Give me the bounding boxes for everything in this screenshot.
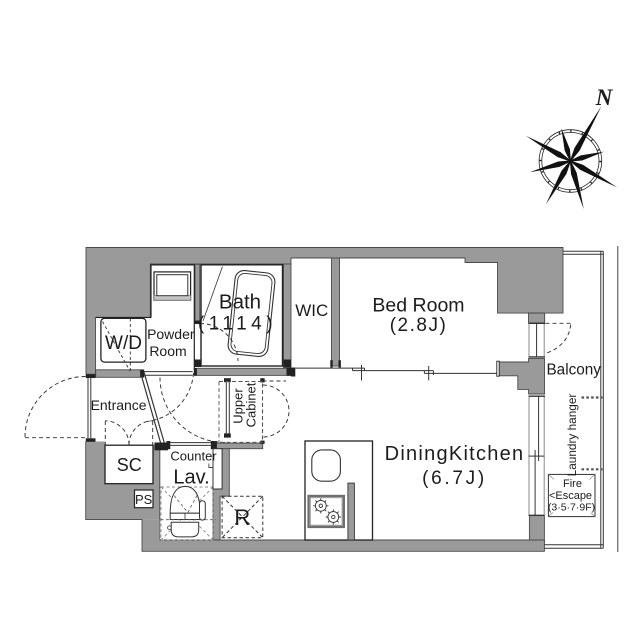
svg-text:(1114): (1114) xyxy=(198,313,277,334)
svg-text:Entrance: Entrance xyxy=(91,397,147,413)
svg-text:Bed Room: Bed Room xyxy=(372,295,464,317)
svg-text:(3·5·7·9F): (3·5·7·9F) xyxy=(548,502,595,514)
svg-text:N: N xyxy=(595,85,614,110)
svg-text:Lav.: Lav. xyxy=(173,467,209,489)
svg-text:Fire: Fire xyxy=(563,478,582,490)
svg-text:<Escape: <Escape xyxy=(549,490,592,502)
svg-text:(2.8J): (2.8J) xyxy=(390,315,448,336)
svg-text:Powder: Powder xyxy=(147,326,195,342)
svg-text:DiningKitchen: DiningKitchen xyxy=(385,443,525,465)
svg-text:Cabinet: Cabinet xyxy=(244,382,259,427)
svg-text:SC: SC xyxy=(117,455,142,475)
svg-text:Counter: Counter xyxy=(170,449,217,464)
svg-text:Laundry hanger: Laundry hanger xyxy=(565,394,579,477)
svg-text:WIC: WIC xyxy=(295,301,328,320)
svg-text:(6.7J): (6.7J) xyxy=(422,468,487,489)
svg-text:W/D: W/D xyxy=(105,333,142,354)
svg-text:R: R xyxy=(234,505,250,530)
svg-text:PS: PS xyxy=(135,492,153,507)
svg-text:Bath: Bath xyxy=(219,291,261,314)
svg-text:Room: Room xyxy=(149,343,186,359)
svg-text:Balcony: Balcony xyxy=(546,361,601,378)
